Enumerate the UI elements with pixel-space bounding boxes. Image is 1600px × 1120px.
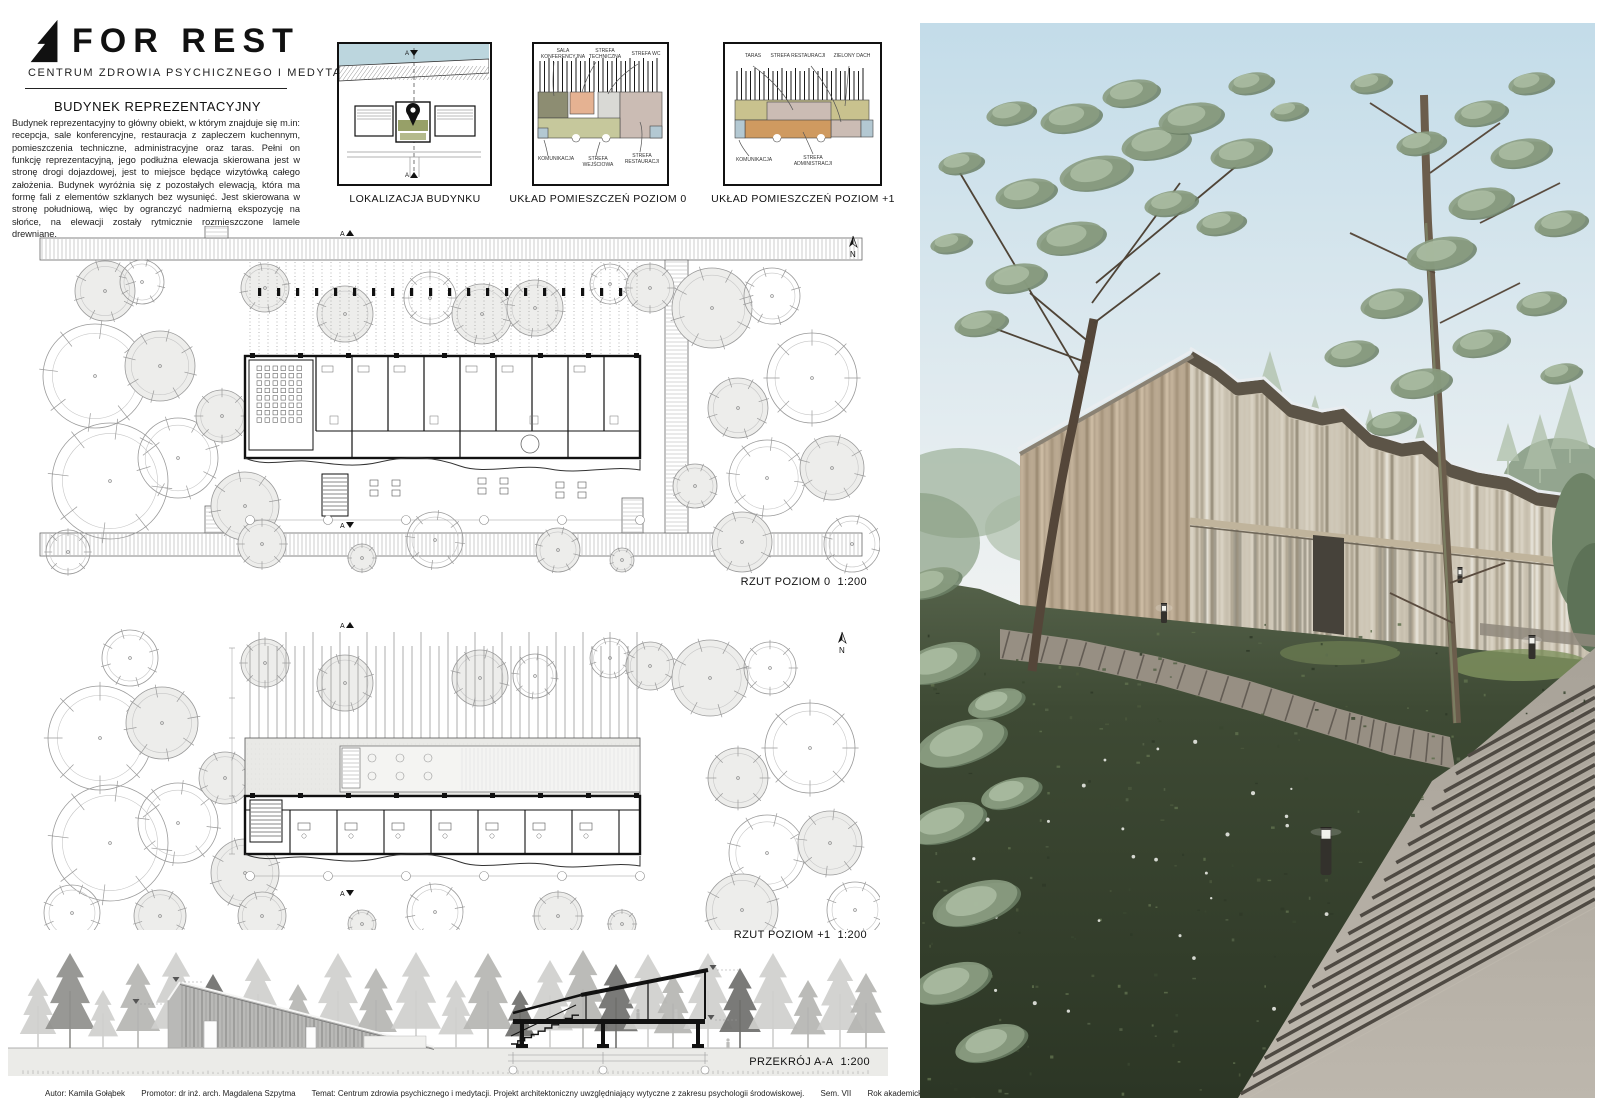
diagram-level1: TARAS STREFA RESTAURACJI ZIELONY DACH KO… bbox=[723, 42, 882, 186]
intro-paragraph: Budynek reprezentacyjny to główny obiekt… bbox=[12, 117, 300, 240]
zone-label-entrance: STREFA WEJŚCIOWA bbox=[578, 157, 618, 169]
svg-text:A: A bbox=[340, 231, 345, 238]
diagram-location-label: LOKALIZACJA BUDYNKU bbox=[320, 193, 510, 205]
zone-label-terrace: TARAS bbox=[739, 54, 767, 60]
section-label: PRZEKRÓJ A-A 1:200 bbox=[735, 1056, 870, 1068]
zone-label-restaurant-l1: STREFA RESTAURACJI bbox=[767, 54, 829, 60]
exterior-render bbox=[920, 23, 1595, 1098]
location-diagram-graphic: AA bbox=[339, 44, 489, 183]
svg-text:A: A bbox=[340, 523, 345, 530]
zone-label-admin: STREFA ADMINISTRACJI bbox=[785, 156, 841, 168]
diagram-level0: SALA KONFERENCYJNA STREFA TECHNICZNA STR… bbox=[532, 42, 669, 186]
svg-text:A: A bbox=[340, 891, 345, 898]
diagram-location: AA bbox=[337, 42, 492, 186]
svg-text:N: N bbox=[839, 646, 845, 655]
svg-text:A: A bbox=[405, 51, 409, 57]
zone-label-circulation-l1: KOMUNIKACJA bbox=[731, 158, 777, 164]
zone-label-restaurant: STREFA RESTAURACJI bbox=[620, 154, 664, 166]
logo: FOR REST bbox=[28, 18, 300, 64]
diagram-level1-label: UKŁAD POMIESZCZEŃ POZIOM +1 bbox=[705, 193, 901, 205]
floor-plan-level1: AAN bbox=[10, 618, 880, 930]
svg-text:A: A bbox=[405, 173, 409, 179]
logo-subtitle: CENTRUM ZDROWIA PSYCHICZNEGO I MEDYTACJI bbox=[28, 67, 363, 79]
svg-text:A: A bbox=[340, 623, 345, 630]
plan0-label: RZUT POZIOM 0 1:200 bbox=[695, 576, 867, 588]
promoter: Promotor: dr inż. arch. Magdalena Szpytm… bbox=[141, 1089, 295, 1098]
semester: Sem. VII bbox=[821, 1089, 852, 1098]
subject: Temat: Centrum zdrowia psychicznego i me… bbox=[312, 1089, 805, 1098]
floor-plan-level0: AAN bbox=[10, 226, 880, 578]
author: Autor: Kamila Gołąbek bbox=[45, 1089, 125, 1098]
header-divider bbox=[25, 88, 287, 89]
logo-tree-icon bbox=[28, 18, 62, 64]
plan1-label: RZUT POZIOM +1 1:200 bbox=[695, 929, 867, 941]
zone-label-conference: SALA KONFERENCYJNA bbox=[540, 49, 586, 61]
zone-label-technical: STREFA TECHNICZNA bbox=[584, 49, 626, 61]
logo-text: FOR REST bbox=[72, 22, 300, 61]
svg-text:N: N bbox=[850, 250, 856, 259]
zone-label-green-roof: ZIELONY DACH bbox=[829, 54, 875, 60]
zone-label-wc: STREFA WC bbox=[628, 52, 664, 58]
intro-title: BUDYNEK REPREZENTACYJNY bbox=[15, 99, 300, 114]
diagram-level0-label: UKŁAD POMIESZCZEŃ POZIOM 0 bbox=[502, 193, 694, 205]
presentation-board: { "header": { "logo": "FOR REST", "subti… bbox=[0, 0, 1600, 1120]
zone-label-circulation: KOMUNIKACJA bbox=[534, 157, 578, 163]
